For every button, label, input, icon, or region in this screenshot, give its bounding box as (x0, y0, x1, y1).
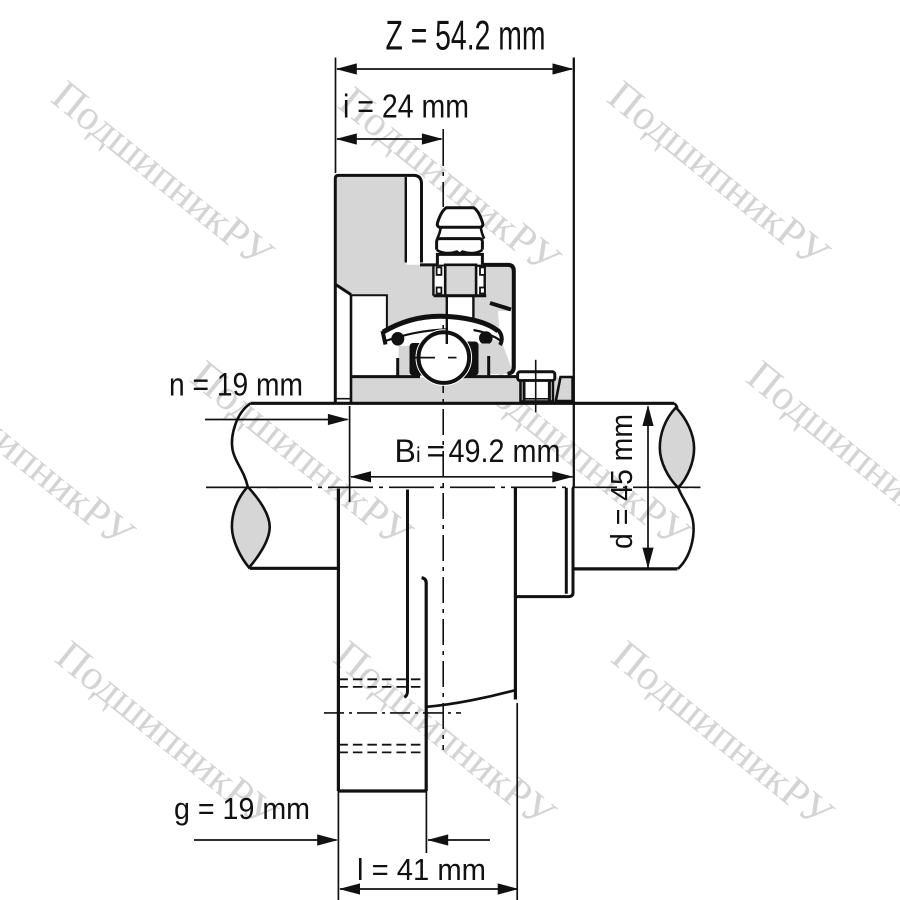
svg-text:l = 41 mm: l = 41 mm (357, 852, 486, 887)
svg-text:Z = 54.2 mm: Z = 54.2 mm (386, 12, 546, 59)
svg-text:49.2 mm: 49.2 mm (449, 433, 561, 469)
svg-text:B: B (395, 433, 416, 469)
svg-text:d = 45 mm: d = 45 mm (604, 414, 639, 549)
svg-text:g = 19 mm: g = 19 mm (174, 791, 310, 826)
svg-text:=: = (427, 433, 446, 469)
svg-text:n = 19 mm: n = 19 mm (169, 367, 303, 403)
svg-text:i: i (416, 444, 421, 467)
svg-text:i = 24 mm: i = 24 mm (343, 89, 469, 126)
